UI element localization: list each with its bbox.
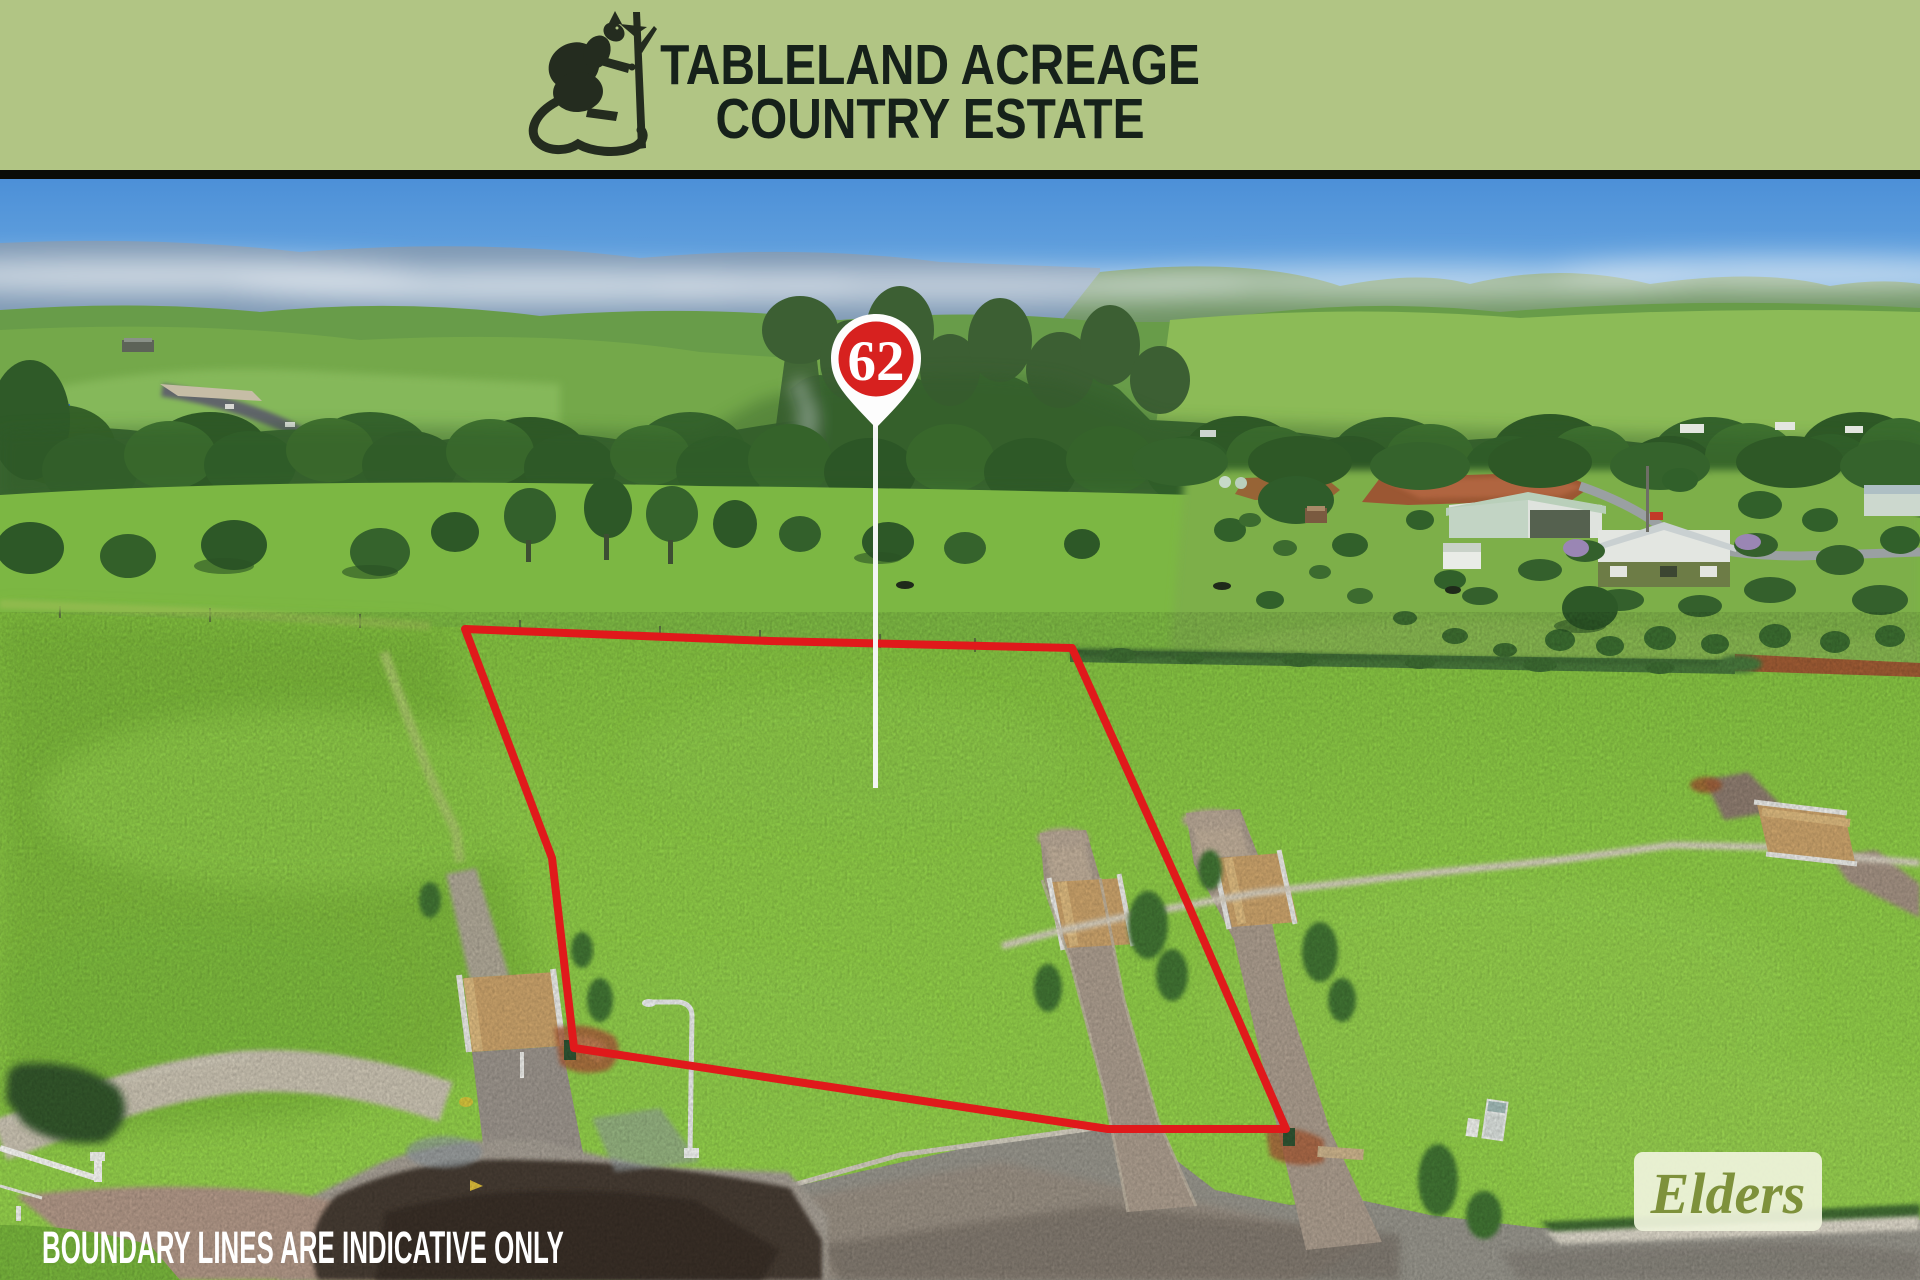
svg-text:BOUNDARY LINES ARE INDICATIVE: BOUNDARY LINES ARE INDICATIVE ONLY bbox=[42, 1223, 564, 1273]
svg-text:Elders: Elders bbox=[1650, 1161, 1806, 1226]
svg-text:COUNTRY ESTATE: COUNTRY ESTATE bbox=[715, 87, 1144, 151]
svg-text:62: 62 bbox=[848, 330, 905, 393]
